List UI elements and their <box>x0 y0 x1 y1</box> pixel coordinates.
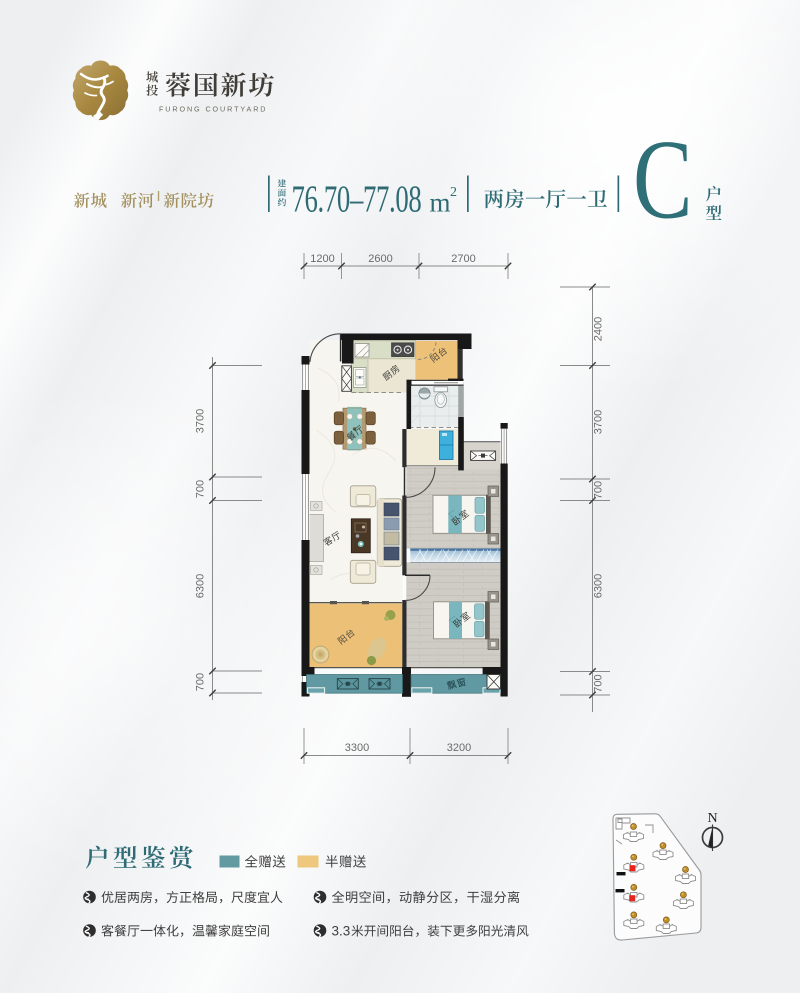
svg-text:700: 700 <box>593 674 605 692</box>
svg-text:6300: 6300 <box>593 574 605 598</box>
svg-text:m: m <box>430 188 451 218</box>
svg-text:2700: 2700 <box>451 253 475 265</box>
svg-text:2400: 2400 <box>593 317 605 341</box>
svg-text:3300: 3300 <box>345 742 369 754</box>
svg-text:3.3: 3.3 <box>332 924 351 939</box>
svg-text:3200: 3200 <box>447 742 471 754</box>
svg-text:2: 2 <box>450 185 457 200</box>
svg-text:N: N <box>707 811 717 826</box>
svg-text:76.70–77.08: 76.70–77.08 <box>292 178 422 221</box>
svg-text:C: C <box>633 118 693 243</box>
svg-text:FURONG COURTYARD: FURONG COURTYARD <box>159 105 267 114</box>
svg-text:700: 700 <box>195 480 207 498</box>
svg-text:6300: 6300 <box>195 574 207 598</box>
svg-text:3700: 3700 <box>593 410 605 434</box>
svg-text:1200: 1200 <box>310 253 334 265</box>
svg-text:700: 700 <box>195 673 207 691</box>
svg-text:2600: 2600 <box>368 253 392 265</box>
svg-text:700: 700 <box>593 481 605 499</box>
svg-text:3700: 3700 <box>195 409 207 433</box>
